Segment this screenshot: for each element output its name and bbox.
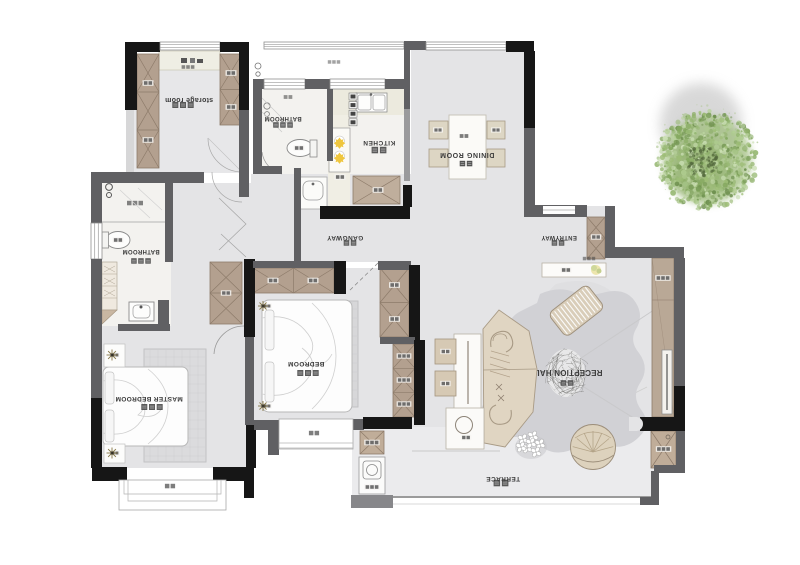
svg-text:BATHROOM: BATHROOM bbox=[122, 248, 159, 254]
svg-text:storage room: storage room bbox=[165, 96, 213, 103]
svg-text:RECEPTION HALL: RECEPTION HALL bbox=[529, 368, 602, 377]
svg-text:GANGWAY: GANGWAY bbox=[326, 234, 363, 241]
svg-text:BEDROOM: BEDROOM bbox=[288, 360, 325, 367]
svg-text:BATHROOM: BATHROOM bbox=[264, 115, 301, 121]
svg-text:TERRACE: TERRACE bbox=[486, 475, 520, 482]
svg-text:DINING ROOM: DINING ROOM bbox=[440, 151, 495, 158]
svg-text:KITCHEN: KITCHEN bbox=[363, 139, 395, 146]
svg-text:ENTRYWAY: ENTRYWAY bbox=[541, 234, 577, 240]
svg-text:MASTER BEDROOM: MASTER BEDROOM bbox=[115, 395, 182, 402]
